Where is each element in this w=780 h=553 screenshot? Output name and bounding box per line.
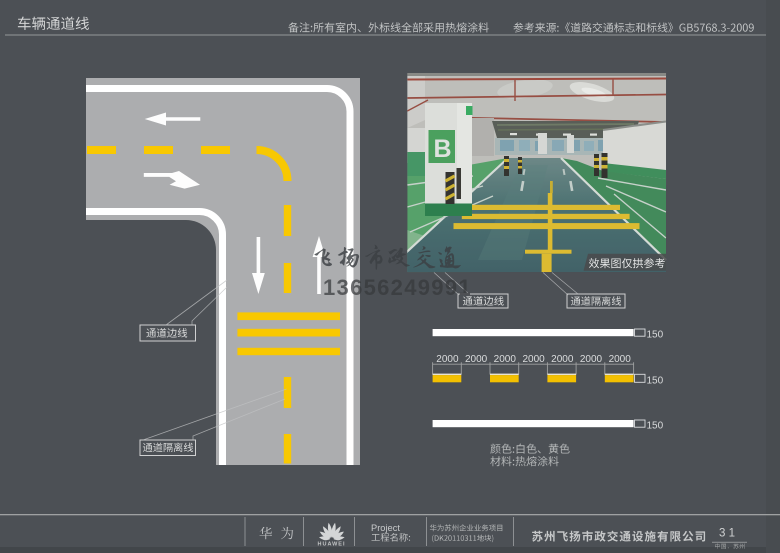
svg-text:2000: 2000 [465,354,488,365]
svg-text:150: 150 [647,421,664,432]
svg-text:2000: 2000 [436,354,459,365]
svg-text:2000: 2000 [609,354,632,365]
svg-text:Project: Project [371,523,400,533]
svg-text:150: 150 [647,330,664,341]
svg-text:13656249991: 13656249991 [323,275,472,300]
svg-text:HUAWEI: HUAWEI [318,542,346,548]
svg-text:3 1: 3 1 [719,528,735,540]
svg-text:2000: 2000 [522,354,545,365]
svg-text:2000: 2000 [580,354,603,365]
svg-text:2000: 2000 [494,354,517,365]
svg-text:150: 150 [647,376,664,387]
svg-text:2000: 2000 [551,354,574,365]
